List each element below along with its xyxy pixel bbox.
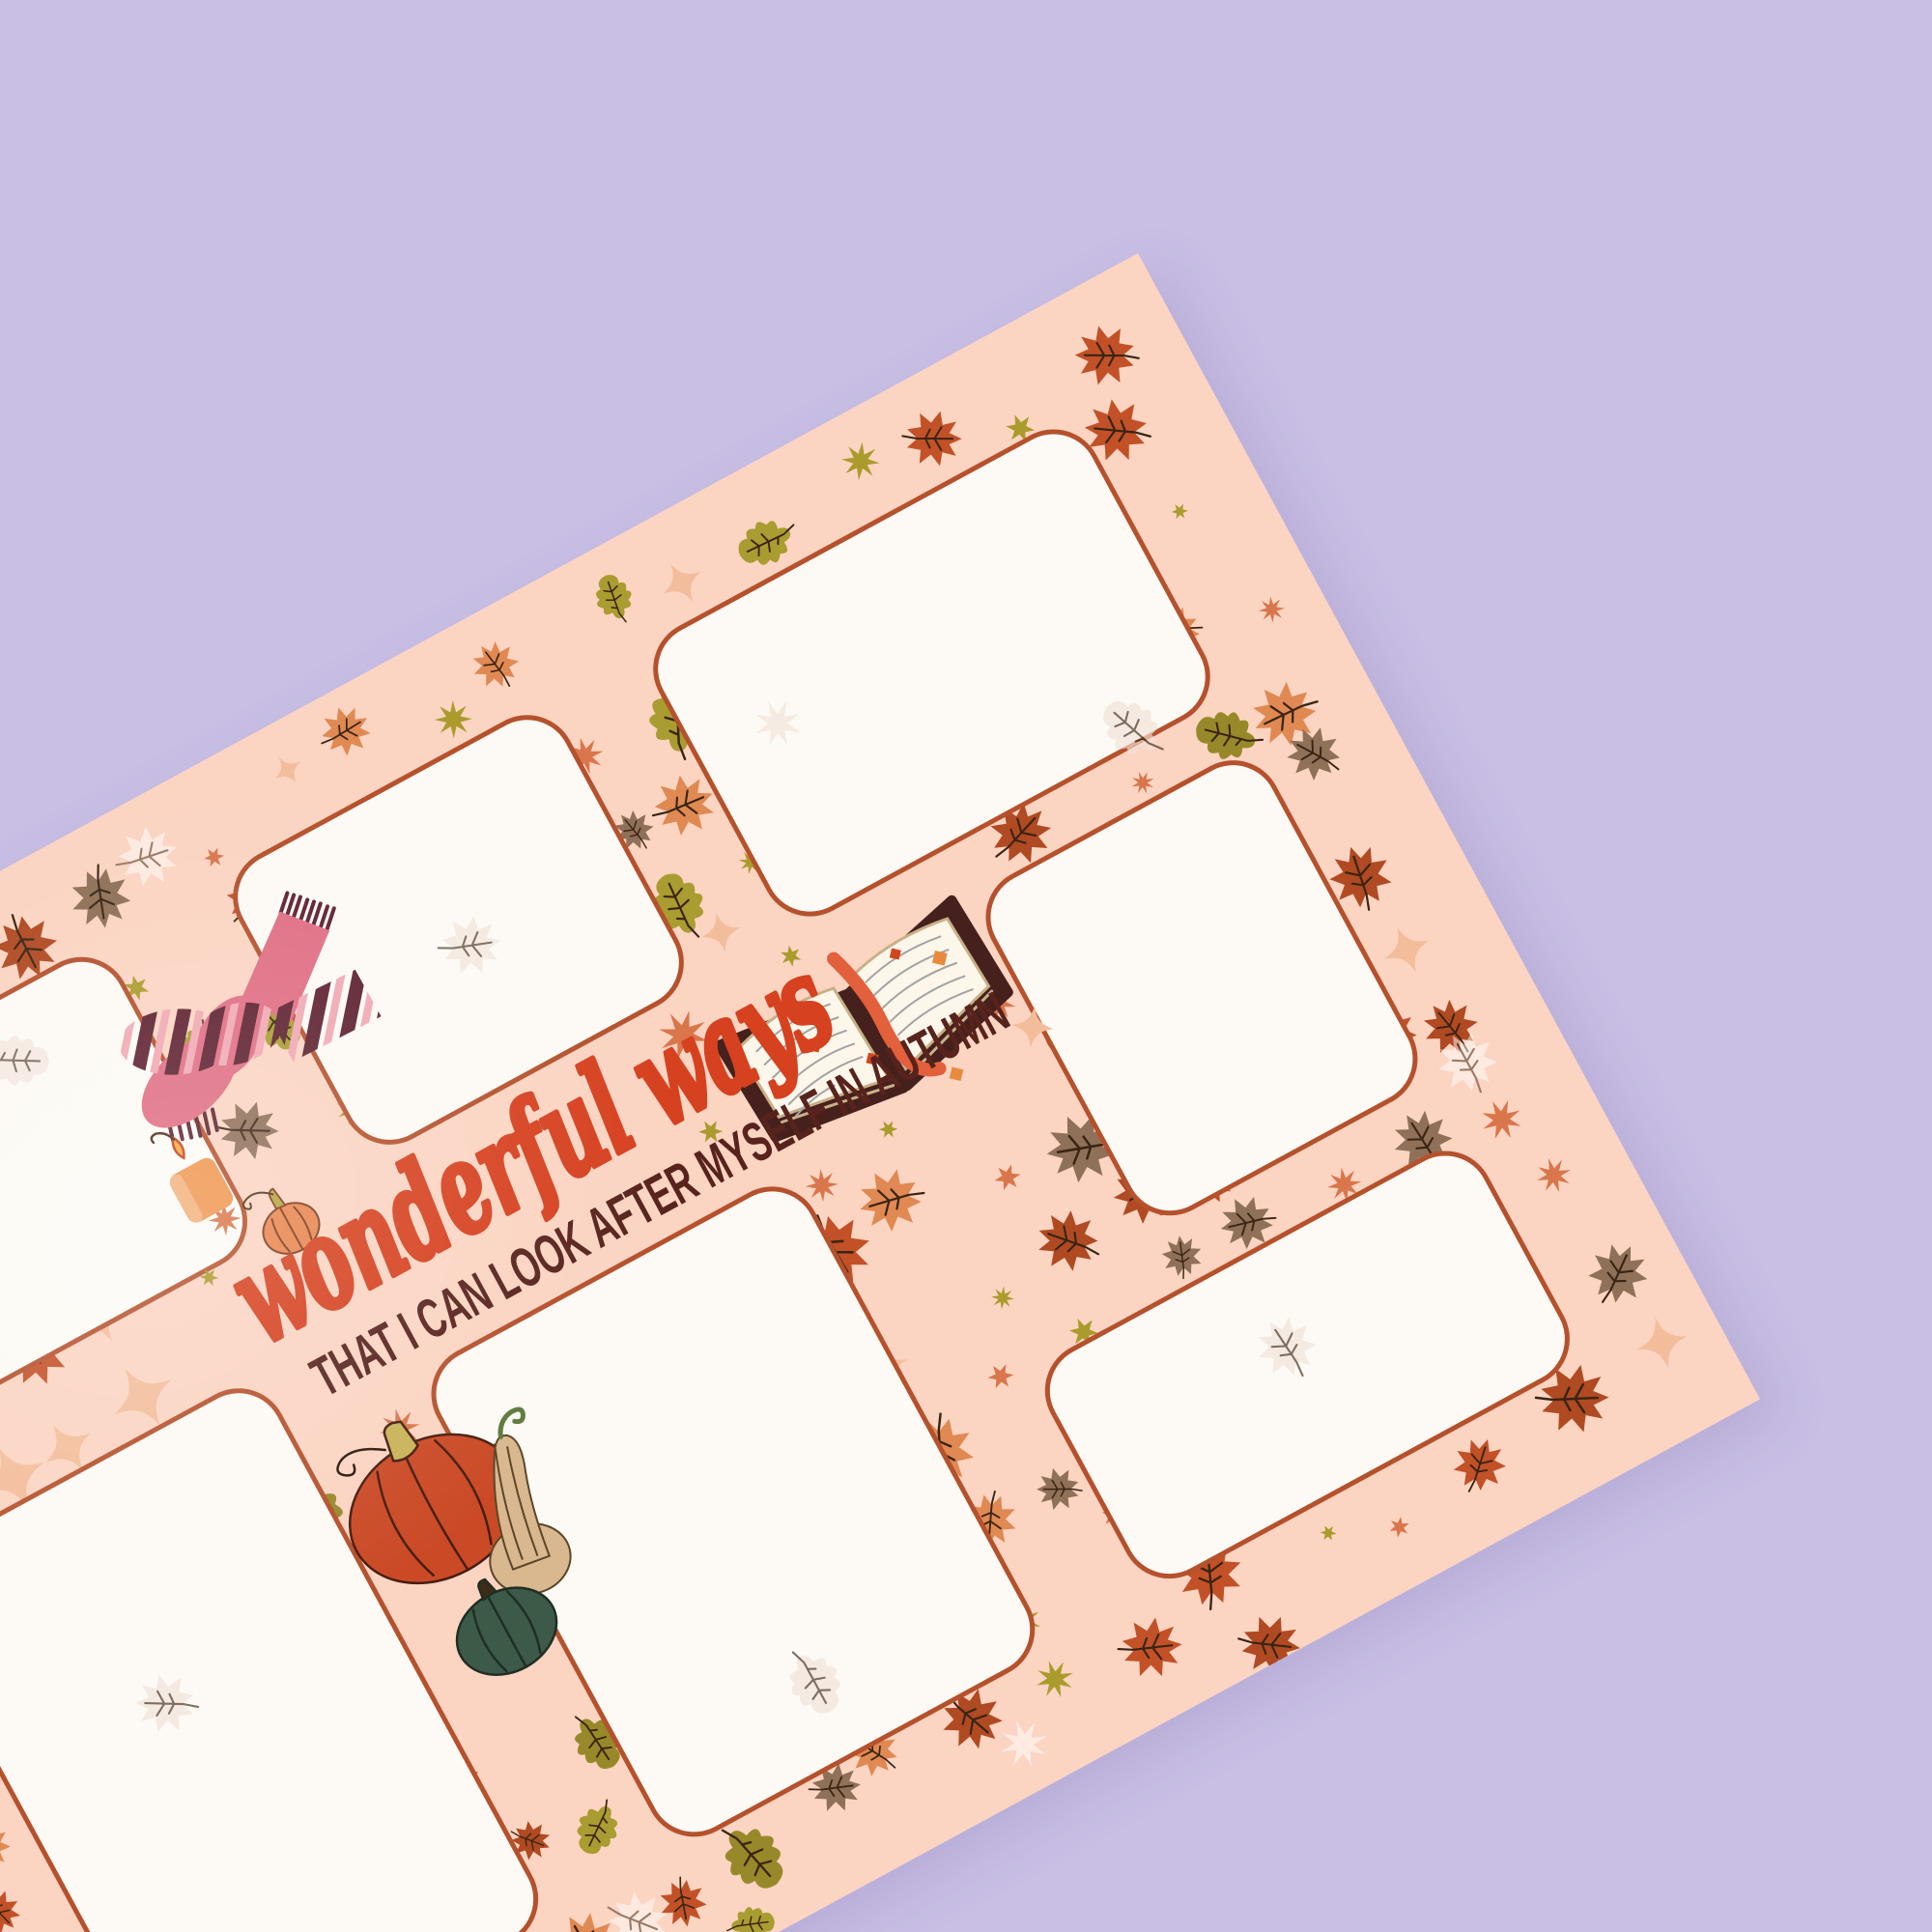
- product-mockup-scene: wonderful ways THAT I CAN LOOK AFTER MYS…: [0, 0, 1932, 1932]
- worksheet-sheet: wonderful ways THAT I CAN LOOK AFTER MYS…: [0, 253, 1760, 1932]
- worksheet-artwork: wonderful ways THAT I CAN LOOK AFTER MYS…: [0, 253, 1760, 1932]
